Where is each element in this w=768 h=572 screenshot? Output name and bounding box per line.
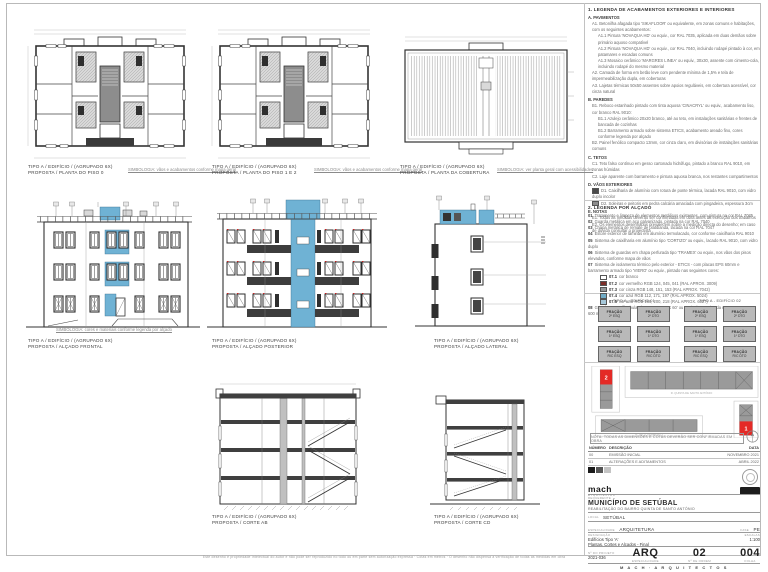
drawing-sheet: { "page": { "bottom_note": "Este desenho… [0, 0, 768, 561]
fraction-tables: TIPO A - EDIFÍCIO 01FRAÇÃO2º ESQFRAÇÃO2º… [598, 298, 756, 362]
title-block-logo-row: mach arquitectos [588, 470, 760, 494]
label-plan-piso0: TIPO A / EDIFÍCIO / (AGRUPADO 6X) PROPOS… [28, 164, 113, 177]
client-subtitle: REABILITAÇÃO DO BAIRRO QUINTA DE SANTO A… [588, 507, 760, 511]
finishes-legend: 1. LEGENDA DE ACABAMENTOS EXTERIORES E I… [588, 7, 760, 234]
designation-row: DESIGNAÇÃO Edifícios Tipo 'A' Plantas, C… [588, 532, 760, 546]
fraction-cell-value: 2º DTO [648, 314, 659, 318]
key-plan: 2 R. QUINTA DE SANTO ANTÓNIO R. DO LOTEA… [586, 366, 762, 443]
front-elevation-drawing [20, 182, 205, 342]
revision-cell: ABRIL 2022 [717, 460, 759, 464]
legend-item-number: 08 [588, 305, 593, 310]
fraction-table: TIPO A - EDIFÍCIO 02FRAÇÃO2º ESQFRAÇÃO2º… [684, 298, 756, 362]
elevation-legend-title: 2. LEGENDA POR ALÇADO [588, 205, 760, 210]
label-line2: PROPOSTA / CORTE AB [212, 520, 297, 526]
elevation-color-swatch [600, 287, 607, 293]
fraction-cell: FRAÇÃO2º DTO [637, 306, 670, 322]
revision-cell: 00 [589, 453, 609, 457]
fraction-cell-value: 2º DTO [734, 314, 745, 318]
revision-row: 00EMISSÃO INICIALNOVEMBRO 2021 [588, 452, 760, 459]
confirm-dimensions-note: NOTA: TODAS AS DIMENSÕES E COTAS DEVERÃO… [590, 433, 744, 444]
fraction-cell-value: 2º ESQ [695, 314, 706, 318]
fraction-cell-value: R/C DTO [647, 354, 661, 358]
floor-plan-piso0-drawing [24, 26, 196, 171]
side-elevation-drawing [413, 176, 548, 346]
fraction-cell: FRAÇÃOR/C ESQ [598, 346, 631, 362]
label-line2: PROPOSTA / PLANTA DO PISO 0 [28, 170, 113, 176]
label-line2: PROPOSTA / ALÇADO FRONTAL [28, 344, 113, 350]
logo-square-3 [604, 467, 611, 474]
finishes-legend-line: A2. Camada de forma em betão leve com pe… [588, 70, 760, 82]
elevation-color-swatch [600, 281, 607, 287]
title-column-divider [584, 3, 585, 555]
legend-item-number: 01 [588, 213, 593, 218]
revision-header-cell: NÚMERO [589, 446, 609, 450]
fraction-cell: FRAÇÃO1º DTO [637, 326, 670, 342]
revision-header-cell: DATA [717, 446, 759, 450]
key-plan-block-a-number: 2 [605, 375, 608, 381]
fraction-cell: FRAÇÃO2º ESQ [684, 306, 717, 322]
finish-color-swatch [592, 188, 599, 194]
elevation-legend-line: 04Estore exterior de lâminas em alumínio… [588, 231, 760, 237]
fraction-cell-value: R/C DTO [733, 354, 747, 358]
stamp-area [740, 469, 760, 495]
specialty-row: ESPECIALIDADE ARQUITETURA FASE PE [588, 521, 760, 532]
finishes-legend-title: 1. LEGENDA DE ACABAMENTOS EXTERIORES E I… [588, 7, 760, 12]
fraction-cell: FRAÇÃOR/C DTO [723, 346, 756, 362]
label-plan-piso12: TIPO A / EDIFÍCIO / (AGRUPADO 6X) PROPOS… [212, 164, 297, 177]
finishes-legend-line: A1.2 Pintura 'NOVAQUA HD' ou equiv., cor… [588, 46, 760, 58]
fraction-cell-value: 1º DTO [648, 334, 659, 338]
logo-text: mach [588, 485, 616, 494]
scale-value: 1:100 [745, 537, 760, 542]
finishes-legend-line: A1.1 Pintura 'NOVAQUA HD' ou equiv., cor… [588, 33, 760, 45]
firm-logo: mach arquitectos [588, 467, 616, 498]
label-front-elevation: TIPO A / EDIFÍCIO / (AGRUPADO 6X) PROPOS… [28, 338, 113, 351]
revision-cell: EMISSÃO INICIAL [609, 453, 717, 457]
label-line2: PROPOSTA / ALÇADO LATERAL [434, 344, 519, 350]
logo-square-2 [596, 467, 603, 474]
fraction-cell: FRAÇÃO2º ESQ [598, 306, 631, 322]
finishes-legend-line: C1. Teto falso contínuo em gesso cartona… [588, 161, 760, 173]
legend-item-number: 07 [588, 262, 593, 267]
finishes-legend-line: A3. Lajetas térmicas 50x50 assentes sobr… [588, 83, 760, 95]
fraction-cell: FRAÇÃO1º DTO [723, 326, 756, 342]
fraction-grid: FRAÇÃO2º ESQFRAÇÃO2º DTOFRAÇÃO1º ESQFRAÇ… [684, 306, 756, 362]
fraction-cell-value: 1º ESQ [695, 334, 706, 338]
section-cd-drawing [424, 384, 546, 517]
finishes-legend-line: B1. Reboco estanhado pintado com tinta a… [588, 103, 760, 115]
legend-item-number: 03 [588, 225, 593, 230]
legend-item-number: 04 [588, 231, 593, 236]
fraction-cell-value: 1º DTO [734, 334, 745, 338]
fraction-cell: FRAÇÃOR/C DTO [637, 346, 670, 362]
fraction-table: TIPO A - EDIFÍCIO 01FRAÇÃO2º ESQFRAÇÃO2º… [598, 298, 670, 362]
fraction-cell: FRAÇÃO1º ESQ [598, 326, 631, 342]
rear-elevation-drawing [203, 179, 391, 342]
label-rear-elevation: TIPO A / EDIFÍCIO / (AGRUPADO 6X) PROPOS… [212, 338, 297, 351]
revision-table: NÚMERODESCRIÇÃODATA00EMISSÃO INICIALNOVE… [588, 445, 760, 466]
label-section-ab: TIPO A / EDIFÍCIO / (AGRUPADO 6X) PROPOS… [212, 514, 297, 527]
finishes-legend-line: B1.2 Barramento armado sobre sistema ETI… [588, 128, 760, 140]
finishes-legend-line: B1.1 Azulejo cerâmico 20x20 branco, até … [588, 116, 760, 128]
legend-item-number: 05 [588, 238, 593, 243]
roof-plan-drawing [395, 32, 577, 169]
label-line2: PROPOSTA / ALÇADO POSTERIOR [212, 344, 297, 350]
note-front-elevation: SIMBOLOGIA: cores e materiais conforme l… [56, 327, 172, 332]
fraction-cell-value: R/C ESQ [608, 354, 622, 358]
client-name: MUNICÍPIO DE SETÚBAL [588, 500, 760, 507]
finishes-legend-line: B2. Painel fenólico compacto 13mm, cor c… [588, 140, 760, 152]
fraction-cell-value: 1º ESQ [609, 334, 620, 338]
firm-spaced-text: M A C H · A R Q U I T E C T O S [588, 563, 760, 572]
section-ab-drawing [204, 380, 372, 517]
label-line2: PROPOSTA / PLANTA DO PISO 1 E 2 [212, 170, 297, 176]
fraction-cell: FRAÇÃOR/C ESQ [684, 346, 717, 362]
revision-header-cell: DESCRIÇÃO [609, 446, 717, 450]
divider-3 [584, 362, 760, 363]
finishes-legend-lines: A. PAVIMENTOSA1. Betonilha afagada tipo … [588, 15, 760, 234]
fraction-grid: FRAÇÃO2º ESQFRAÇÃO2º DTOFRAÇÃO1º ESQFRAÇ… [598, 306, 670, 362]
client-row: REQUERENTE MUNICÍPIO DE SETÚBAL REABILIT… [588, 494, 760, 512]
elevation-legend-line: 06Sistema de guardas em chapa perfurada … [588, 250, 760, 262]
legend-item-number: 07.1 [609, 274, 617, 279]
elevation-legend-line: 07Sistema de isolamento térmico pelo ext… [588, 262, 760, 274]
label-line2: PROPOSTA / CORTE CD [434, 520, 519, 526]
note-roof-plan: SIMBOLOGIA: ver planta geral com acessib… [497, 167, 593, 172]
fraction-table-title: TIPO A - EDIFÍCIO 01 [598, 298, 670, 303]
fraction-cell-value: 2º ESQ [609, 314, 620, 318]
label-roof-plan: TIPO A / EDIFÍCIO / (AGRUPADO 6X) PROPOS… [400, 164, 489, 177]
finishes-legend-line: A1.3 Mosaico cerâmico 'MARGRES LINEA' ou… [588, 58, 760, 70]
finishes-legend-line: D1. Caixilharia de alumínio com rotura d… [588, 188, 760, 200]
elevation-color-swatch [600, 275, 607, 281]
logo-square-1 [588, 467, 595, 474]
finishes-legend-line: A1. Betonilha afagada tipo 'SIKAFLOOR' o… [588, 21, 760, 33]
elevation-legend-line: 05Sistema de caixilharia em alumínio tip… [588, 238, 760, 250]
revision-cell: NOVEMBRO 2021 [717, 453, 759, 457]
fraction-table-title: TIPO A - EDIFÍCIO 02 [684, 298, 756, 303]
revision-row: 01ALTERAÇÕES E ADITAMENTOSABRIL 2022 [588, 459, 760, 466]
revision-header-row: NÚMERODESCRIÇÃODATA [588, 445, 760, 452]
label-section-cd: TIPO A / EDIFÍCIO / (AGRUPADO 6X) PROPOS… [434, 514, 519, 527]
fraction-cell: FRAÇÃO1º ESQ [684, 326, 717, 342]
fraction-cell: FRAÇÃO2º DTO [723, 306, 756, 322]
revision-cell: 01 [589, 460, 609, 464]
revision-cell: ALTERAÇÕES E ADITAMENTOS [609, 460, 717, 464]
legend-item-number: 07.3 [609, 287, 617, 292]
fraction-cell-value: R/C ESQ [694, 354, 708, 358]
sheet-footer-note: Este desenho é propriedade intelectual d… [8, 555, 760, 559]
legend-item-number: 06 [588, 250, 593, 255]
stamp-icon [742, 469, 758, 485]
floor-plan-piso12-drawing [208, 26, 380, 171]
legend-item-number: 07.2 [609, 281, 617, 286]
label-line2: PROPOSTA / PLANTA DA COBERTURA [400, 170, 489, 176]
label-side-elevation: TIPO A / EDIFÍCIO / (AGRUPADO 6X) PROPOS… [434, 338, 519, 351]
legend-item-number: 02 [588, 219, 593, 224]
finishes-legend-line: C2. Laje aparente com barramento e pintu… [588, 174, 760, 180]
